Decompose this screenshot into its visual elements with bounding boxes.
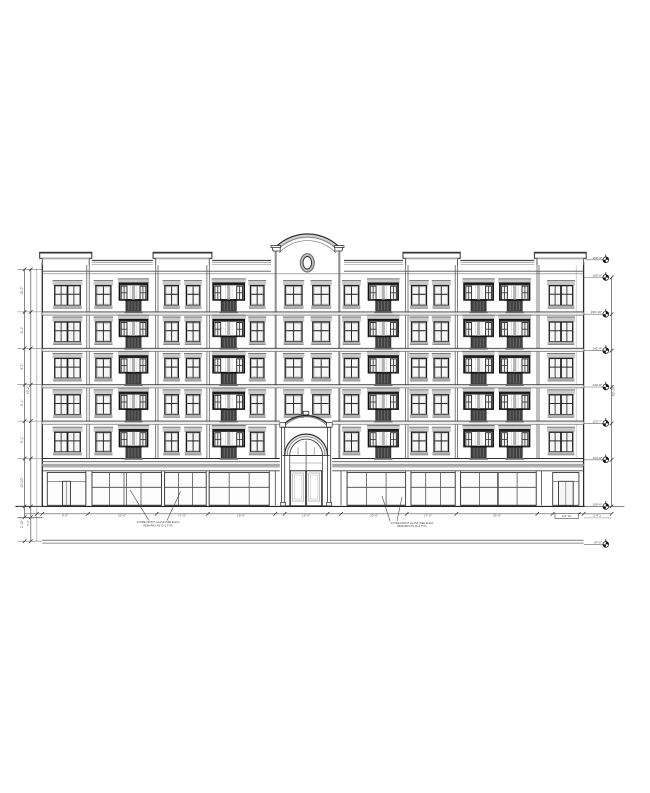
svg-text:26'-6″: 26'-6″ [493,513,502,517]
svg-text:162'-4″: 162'-4″ [592,256,603,260]
svg-text:9'-1″: 9'-1″ [20,436,24,443]
svg-text:97'-6″: 97'-6″ [594,540,603,544]
svg-text:10'-2″: 10'-2″ [20,286,24,295]
svg-text:15'-0″: 15'-0″ [302,513,311,517]
svg-text:62'-10″: 62'-10″ [612,385,616,396]
svg-text:17'-0″: 17'-0″ [424,513,433,517]
svg-text:141'-9″: 141'-9″ [592,347,603,351]
svg-text:100'-6″: 100'-6″ [592,502,603,506]
svg-text:17'-0″: 17'-0″ [178,513,187,517]
svg-text:150'-10″: 150'-10″ [591,310,603,314]
svg-text:2'-10″: 2'-10″ [20,519,24,528]
svg-text:12'-10″: 12'-10″ [20,477,24,488]
svg-text:123'-7″: 123'-7″ [592,419,603,423]
svg-text:22'-6″: 22'-6″ [118,513,127,517]
svg-text:1/4″ GL: 1/4″ GL [562,514,572,518]
svg-text:9'-6″: 9'-6″ [62,513,69,517]
svg-text:114'-6″: 114'-6″ [593,456,603,460]
svg-text:REMARKS AS (G-1 TYP): REMARKS AS (G-1 TYP) [397,524,426,528]
svg-text:9'-1″: 9'-1″ [20,326,24,333]
svg-text:3'-0″: 3'-0″ [26,519,30,526]
svg-text:20'-6″: 20'-6″ [370,513,379,517]
svg-text:9'-1″: 9'-1″ [20,362,24,369]
svg-text:132'-8″: 132'-8″ [592,383,603,387]
svg-text:160'-0″: 160'-0″ [592,274,603,278]
svg-text:REMARKS AS (G-1 TYP): REMARKS AS (G-1 TYP) [143,523,172,527]
svg-text:19'-6″: 19'-6″ [237,513,246,517]
svg-text:9'-1″: 9'-1″ [20,399,24,406]
svg-text:1'-4″±: 1'-4″± [593,513,601,517]
svg-text:47'-2″: 47'-2″ [26,385,30,394]
